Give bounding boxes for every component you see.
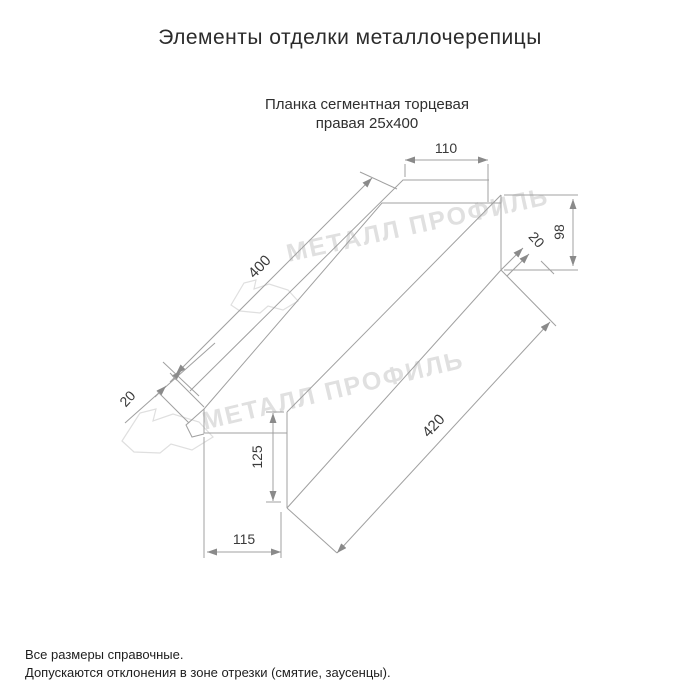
dim-label-400: 400 [245, 252, 275, 282]
dim-label-110: 110 [435, 140, 458, 156]
dim-label-98: 98 [551, 224, 567, 240]
dim-label-125: 125 [249, 445, 265, 469]
dim-label-115: 115 [233, 531, 256, 547]
dimension-top-flange-width: 110 [405, 140, 488, 202]
watermark-logo-left [122, 409, 213, 453]
footer-note-2: Допускаются отклонения в зоне отрезки (с… [25, 665, 391, 680]
dimension-bottom-flange-width: 115 [204, 437, 281, 558]
dimension-top-edge-length: 400 [163, 172, 397, 396]
dim-label-20-right: 20 [525, 228, 547, 250]
part-outline [186, 180, 554, 508]
drawing-page: Элементы отделки металлочерепицы Планка … [0, 0, 700, 700]
technical-drawing: 110 400 98 20 20 [0, 0, 700, 700]
dimension-end-hem: 20 [525, 228, 547, 250]
dimension-bottom-edge-length: 420 [287, 270, 556, 553]
dim-label-20-left: 20 [116, 387, 138, 409]
dimension-left-hem: 20 [116, 343, 215, 423]
footer-note-1: Все размеры справочные. [25, 647, 183, 662]
dimension-front-height: 125 [249, 412, 284, 502]
